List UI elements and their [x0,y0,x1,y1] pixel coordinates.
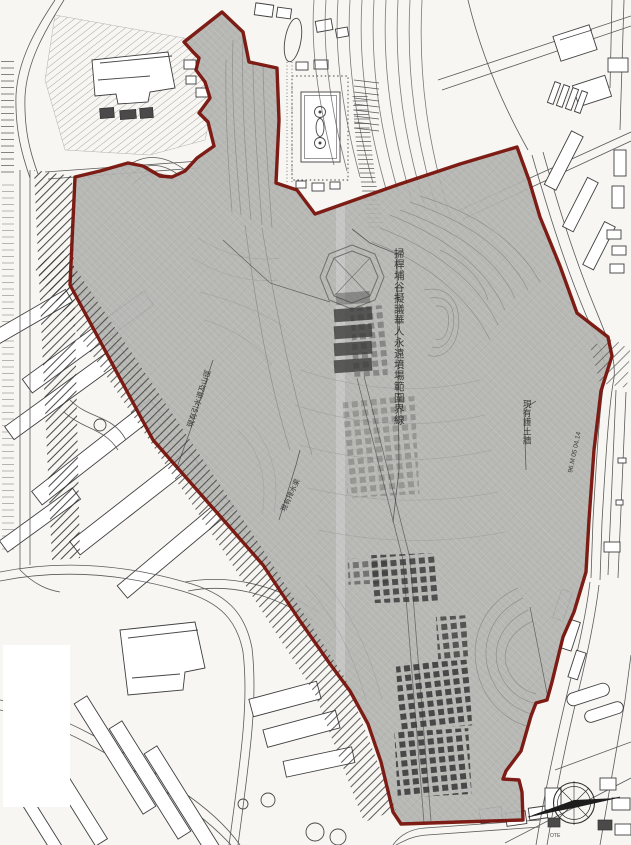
annotation-boundary-note: 掃桿埔谷擬議華人永遠墳場範圍界線 [394,247,405,427]
blank-scan-patch [3,645,70,807]
grave-plot-cluster [394,728,471,798]
survey-map: 掃桿埔谷擬議華人永遠墳場範圍界線現有引水道及山徑現有排水渠現有護土牆96.M 0… [0,0,631,845]
grave-plot-cluster [371,553,439,603]
annotation-corner-micro-label: OTE [550,833,561,839]
grave-plot-cluster [350,305,388,377]
annotation-east-wall-note: 現有護土牆 [523,399,532,445]
grave-plot-cluster [342,396,419,498]
grave-plot-cluster [396,660,472,731]
scanned-map-page: 掃桿埔谷擬議華人永遠墳場範圍界線現有引水道及山徑現有排水渠現有護土牆96.M 0… [0,0,631,845]
structures-top-center [254,3,349,63]
grave-plot-cluster [436,615,468,661]
